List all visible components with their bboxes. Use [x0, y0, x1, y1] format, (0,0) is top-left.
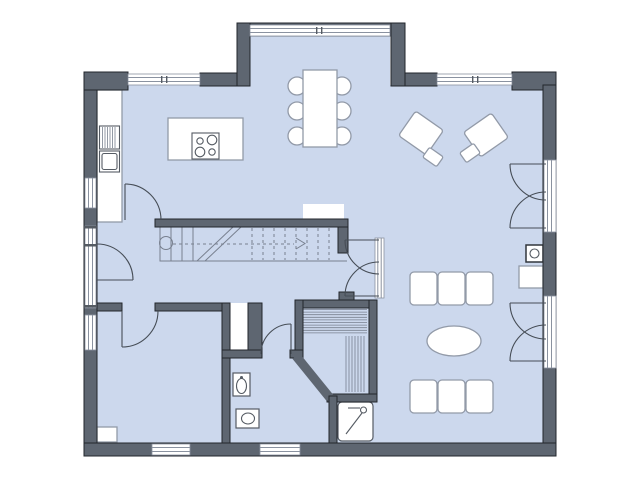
corner-shelf-niche [97, 427, 117, 442]
sauna-wall-top [295, 300, 377, 308]
shower-group [338, 402, 373, 441]
bathroom-wall [222, 350, 262, 358]
wall-north [200, 73, 237, 86]
wall-north [405, 73, 437, 86]
coffee-table [427, 326, 481, 356]
window-south-bathroom [260, 444, 300, 455]
window-west-kitchen [85, 178, 96, 208]
sofa-cushion [410, 272, 437, 305]
wardrobe-niche [230, 303, 248, 351]
window-south-office [152, 444, 190, 455]
wall-corner-nw [84, 72, 128, 90]
kitchen-island [168, 118, 243, 160]
window-north-left [128, 74, 200, 85]
dining-table [303, 70, 337, 147]
wall-east [543, 85, 556, 456]
sauna-wall-east [369, 300, 377, 402]
window-north-right [437, 74, 512, 85]
sofa-cushion [410, 380, 437, 413]
dining-group [288, 70, 351, 147]
office-wall [97, 303, 122, 311]
office-wall [155, 303, 227, 311]
toilet [236, 409, 259, 428]
wood-stove-icon [526, 245, 543, 262]
chimney-niche [303, 204, 344, 219]
window-bay [250, 25, 390, 36]
sofa-cushion [466, 272, 493, 305]
bay-wall-east [391, 23, 405, 86]
floor-plan-canvas [0, 0, 640, 480]
sauna-wall-west [295, 300, 303, 353]
sofa-cushion [438, 272, 465, 305]
window-west-office [85, 315, 96, 350]
sofa-cushion [438, 380, 465, 413]
kitchen-counter [97, 90, 122, 222]
hearth-plate [519, 266, 543, 288]
faucet-dot [240, 376, 243, 379]
bay-wall-west [237, 23, 250, 86]
sofa-cushion [466, 380, 493, 413]
office-east-wall [222, 303, 230, 443]
floor-plan-drawing [0, 0, 640, 480]
stair-wall [155, 219, 348, 227]
sauna-bench-right [346, 336, 364, 392]
shower-wall [329, 396, 337, 443]
